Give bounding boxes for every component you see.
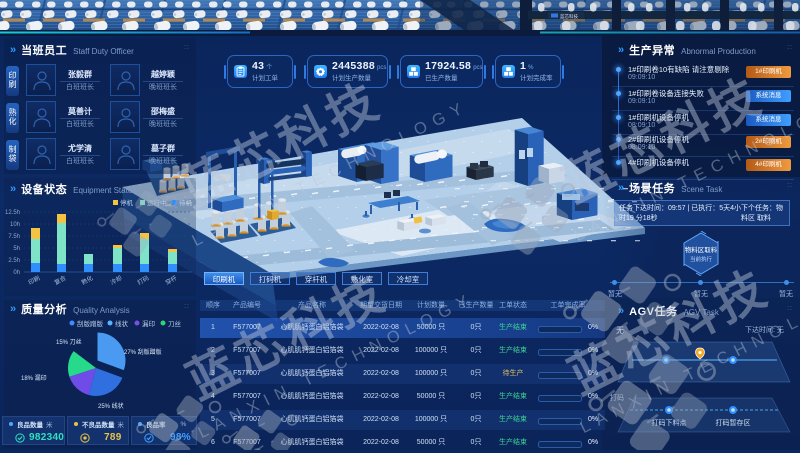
svg-text:待机: 待机 (179, 198, 193, 207)
svg-text:熟化: 熟化 (80, 274, 94, 287)
svg-text:5h: 5h (13, 246, 20, 252)
svg-text:27% 刮版蹭版: 27% 刮版蹭版 (124, 348, 162, 356)
svg-text:25% 线状: 25% 线状 (98, 402, 124, 410)
svg-text:刀丝: 刀丝 (168, 319, 182, 328)
svg-text:停机: 停机 (120, 198, 134, 207)
svg-text:印刷: 印刷 (27, 274, 41, 287)
svg-text:2.5h: 2.5h (8, 258, 20, 264)
svg-text:打码: 打码 (136, 274, 150, 287)
svg-text:0h: 0h (13, 270, 20, 276)
svg-text:10h: 10h (10, 222, 20, 228)
svg-text:7.5h: 7.5h (8, 234, 20, 240)
svg-text:穿杆: 穿杆 (164, 274, 178, 287)
svg-text:运行中: 运行中 (147, 198, 167, 207)
svg-text:冷却: 冷却 (109, 274, 123, 287)
svg-text:漏印: 漏印 (142, 319, 155, 328)
svg-text:打码暂存区: 打码暂存区 (716, 418, 751, 427)
svg-text:12.5h: 12.5h (5, 210, 20, 216)
svg-text:复合: 复合 (53, 274, 67, 287)
svg-text:15% 刀丝: 15% 刀丝 (56, 338, 82, 346)
svg-text:打码下料点: 打码下料点 (652, 418, 687, 427)
svg-text:刮版蹭版: 刮版蹭版 (77, 319, 104, 328)
svg-text:线状: 线状 (115, 319, 129, 328)
svg-text:18% 漏印: 18% 漏印 (21, 374, 47, 382)
svg-text:物料区取料: 物料区取料 (685, 245, 718, 254)
svg-text:当前执行: 当前执行 (690, 255, 713, 263)
